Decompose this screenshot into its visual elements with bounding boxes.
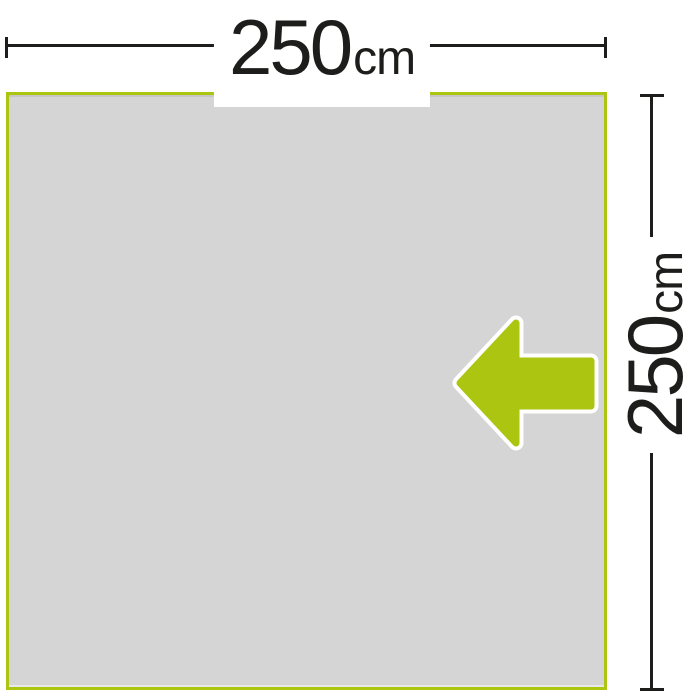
height-unit: cm <box>640 252 693 314</box>
left-arrow-fill <box>460 323 591 443</box>
width-dimension-label: 250cm <box>214 10 430 107</box>
dimension-diagram-canvas: 250cm 250cm <box>0 0 698 700</box>
width-dimension-tick-left <box>5 37 8 58</box>
width-unit: cm <box>353 32 415 85</box>
height-dimension-label: 250cm <box>616 240 698 450</box>
height-dimension-tick-bottom <box>640 688 664 691</box>
width-dimension-tick-right <box>604 37 607 58</box>
height-value: 250 <box>611 317 698 438</box>
left-arrow-icon <box>440 300 610 460</box>
height-dimension-tick-top <box>640 94 664 97</box>
width-value: 250 <box>229 3 350 91</box>
